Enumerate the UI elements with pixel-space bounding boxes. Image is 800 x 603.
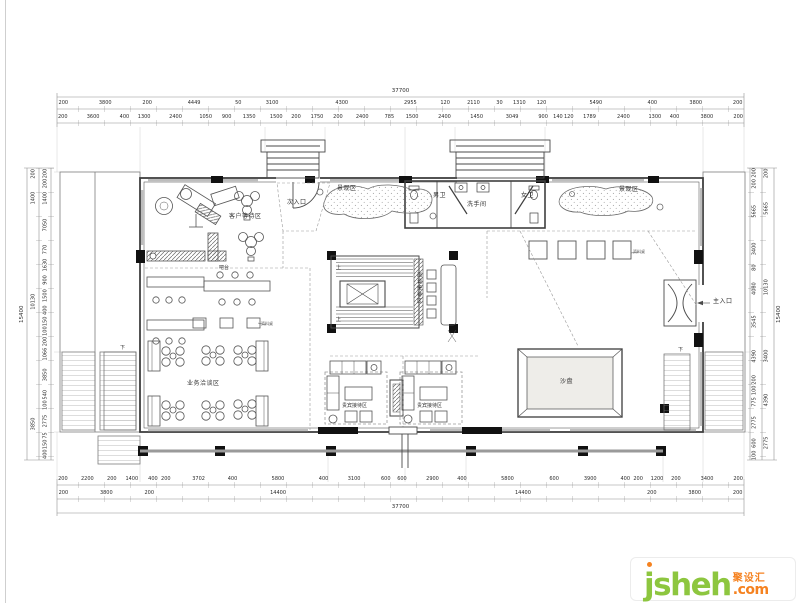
dimension-value: 200 [141,100,154,107]
dimension-value: 4080 [751,271,759,306]
dimension-value: 2400 [426,114,463,121]
dimension-value: 200 [632,476,644,483]
dimension-value: 80 [751,264,759,271]
dimension-value: 1350 [236,114,262,121]
label-bar: 吧台 [219,266,229,271]
left-dimension-inner: 2002001400705077016309001500400150100200… [42,168,50,460]
label-stair-down-left: 下 [120,346,125,351]
dimension-value: 1500 [42,287,50,305]
left-total-dimension: 15400 [18,168,26,460]
dimension-value: 200 [290,114,302,121]
dimension-value: 200 [42,168,50,178]
label-materials-left: 资料桌 [261,322,273,326]
dimension-value: 2400 [344,114,381,121]
dimension-value: 100 [751,450,759,460]
dimension-value: 400 [317,476,331,483]
floor-plan-sheet: 景观区 景观区 男卫 洗手间 女卫 次入口 客户等待区 吧台 面谈接待区 业务洽… [0,0,800,603]
label-stair-up-bottom: 上 [336,318,341,323]
dimension-value: 200 [731,100,744,107]
dimension-value: 2775 [42,410,50,432]
dimension-value: 600 [378,476,394,483]
landscape-ponds [317,185,663,219]
logo-brand-text: jsheh [644,573,731,597]
top-dimension-row-1: 2003800200444950310043002955120211030131… [57,100,744,107]
dimension-value: 100 [42,326,50,336]
dimension-value: 100 [42,400,50,410]
dimension-value: 7050 [42,206,50,243]
dimension-value: 50 [235,100,242,107]
logo-tld-text: .com [733,584,769,597]
dimension-value: 2110 [451,100,496,107]
dimension-value: 1066 [42,346,50,362]
dimension-value: 600 [751,437,759,450]
dimension-value: 2400 [157,114,194,121]
dimension-value: 120 [563,114,574,121]
dimension-value: 200 [57,100,70,107]
dimension-value: 200 [645,490,658,497]
dimension-value: 120 [536,100,547,107]
dimension-value: 200 [57,114,69,121]
dimension-value: 3800 [70,100,141,107]
label-washroom: 洗手间 [467,202,487,208]
dimension-value: 400 [42,305,50,316]
dimension-value: 400 [644,100,660,107]
dimension-value: 1400 [42,189,50,207]
dimension-value: 600 [394,476,410,483]
table-cluster [162,401,184,420]
dimension-value: 200 [30,168,38,181]
bottom-total-dimension: 37700 [57,504,744,510]
label-materials-right: 资料桌 [633,250,645,254]
waiting-seats [235,192,264,262]
jsheh-logo[interactable]: jsheh 聚设汇 .com [644,563,794,597]
dimension-value: 400 [225,476,239,483]
dimension-value: 5665 [763,179,771,238]
dimension-value: 3400 [763,336,771,376]
table-cluster [162,347,184,366]
table-cluster [202,346,224,365]
label-vip-left: 贵宾接待区 [342,404,367,409]
dimension-value: 770 [42,243,50,255]
top-dimension-row-2: 2003600400130024001050900135015002001750… [57,114,744,121]
dimension-value: 200 [57,490,70,497]
stair-elevator-core [331,256,423,328]
dimension-value: 4390 [751,338,759,375]
dimension-value: 75 [42,432,50,439]
dimension-value: 1400 [118,476,146,483]
dimension-value: 2200 [69,476,106,483]
dimension-value: 1450 [463,114,490,121]
dimension-value: 120 [439,100,450,107]
dimension-value: 150 [42,316,50,326]
table-cluster [234,400,256,419]
dimension-value: 3850 [30,388,38,460]
dimension-value: 200 [106,476,118,483]
dimension-value: 540 [42,389,50,400]
dimension-value: 200 [732,114,744,121]
dimension-value: 3800 [70,490,143,497]
reception-desk-area [156,185,240,227]
label-vip-right: 贵宾接待区 [417,404,442,409]
label-secondary-entrance: 次入口 [287,200,307,206]
dimension-value: 4449 [153,100,234,107]
dimension-value: 900 [217,114,236,121]
dimension-value: 3800 [658,490,731,497]
dimension-value: 400 [455,476,469,483]
vip-sofa-group [327,361,381,423]
dimension-value: 1300 [131,114,157,121]
dimension-value: 3900 [562,476,618,483]
dimension-value: 785 [381,114,398,121]
dimension-value: 200 [143,490,156,497]
dimension-value: 1050 [194,114,217,121]
dimension-value: 200 [332,114,344,121]
exterior-decks [60,172,745,464]
label-womens-wc: 女卫 [521,193,534,199]
dimension-value: 2400 [605,114,642,121]
label-business-negotiation: 业务洽谈区 [187,381,220,387]
dimension-value: 775 [751,395,759,409]
dimension-value: 10130 [763,238,771,336]
dimension-value: 150 [42,439,50,449]
dimension-value: 400 [146,476,160,483]
dimension-value: 2955 [381,100,439,107]
label-sand-table: 沙盘 [560,379,573,385]
dimension-value: 3400 [751,233,759,264]
label-landscape-right: 景观区 [619,187,639,193]
dimension-value: 3049 [490,114,534,121]
dimension-value: 1789 [574,114,605,121]
dimension-value: 400 [118,114,132,121]
right-total-dimension: 15400 [775,168,783,460]
dimension-value: 200 [57,476,69,483]
dimension-value: 200 [731,490,744,497]
dimension-value: 2775 [763,425,771,460]
dimension-value: 14400 [401,490,646,497]
dimension-value: 3100 [242,100,302,107]
table-cluster [234,346,256,365]
dimension-value: 3545 [751,306,759,338]
dimension-value: 1300 [642,114,668,121]
dimension-value: 3702 [172,476,226,483]
dimension-value: 200 [160,476,172,483]
dimension-value: 1630 [42,256,50,274]
label-stair-down-right: 下 [678,348,683,353]
vip-lounges [325,361,462,424]
dimension-value: 3800 [681,114,732,121]
bottom-dimension-row-2: 200380020014400144002003800200 [57,490,744,497]
dimension-value: 10130 [30,215,38,388]
dimension-value: 5665 [751,189,759,233]
dimension-value: 600 [546,476,562,483]
dimension-value: 200 [763,168,771,179]
dimension-value: 200 [42,336,50,346]
dimension-value: 400 [42,449,50,460]
bar-area [147,233,270,344]
bottom-dimension-row-1: 2002200200140040020037024005800400310060… [57,476,744,483]
dimension-value: 1200 [644,476,670,483]
label-mens-wc: 男卫 [433,193,446,199]
label-main-entrance: 主入口 [713,299,733,305]
dimension-value: 200 [751,179,759,190]
dimension-value: 3850 [42,362,50,388]
materials-desks [529,241,639,259]
dimension-value: 1500 [262,114,290,121]
dimension-value: 200 [751,168,759,179]
dimension-value: 3600 [69,114,118,121]
dimension-value: 200 [751,375,759,386]
dimension-value: 140 [552,114,563,121]
dimension-value: 100 [751,385,759,395]
dimension-value: 4390 [763,376,771,424]
label-landscape-left: 景观区 [337,186,357,192]
label-customer-waiting: 客户等待区 [229,214,262,220]
dimension-value: 5490 [547,100,644,107]
dimension-value: 14400 [156,490,401,497]
dimension-value: 2775 [751,409,759,437]
dimension-value: 5800 [469,476,546,483]
dimension-value: 30 [496,100,503,107]
table-cluster [202,401,224,420]
top-total-dimension: 37700 [57,88,744,94]
dimension-value: 4300 [302,100,381,107]
dimension-value: 200 [42,178,50,188]
dimension-value: 1750 [302,114,332,121]
dimension-value: 3100 [331,476,378,483]
dimension-value: 900 [42,274,50,287]
dimension-value: 900 [534,114,553,121]
vip-sofa-group [402,361,456,423]
logo-dot-icon [647,562,652,567]
dimension-value: 400 [618,476,632,483]
right-dimension-mid: 200566510130340043902775 [763,168,771,460]
label-meeting-reception: 面谈接待区 [416,272,421,324]
right-dimension-inner: 2002005665340080408035454390200100775277… [751,168,759,460]
dimension-value: 200 [732,476,744,483]
label-stair-up-top: 上 [336,266,341,271]
dimension-value: 1500 [398,114,426,121]
dimension-value: 5800 [239,476,316,483]
left-dimension-mid: 2001400101303850 [30,168,38,460]
dimension-value: 3800 [660,100,731,107]
dimension-value: 1400 [30,181,38,215]
dimension-value: 3400 [682,476,732,483]
dimension-value: 400 [668,114,682,121]
dimension-value: 2900 [410,476,455,483]
dimension-value: 1310 [503,100,536,107]
dimension-value: 200 [670,476,682,483]
